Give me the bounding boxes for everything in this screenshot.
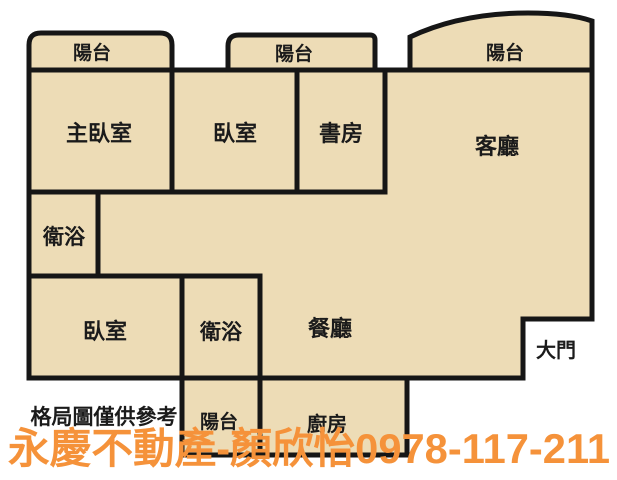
dining-room-label: 餐廳 bbox=[308, 316, 352, 341]
balcony-top-right-label: 陽台 bbox=[486, 41, 524, 64]
living-room-label: 客廳 bbox=[475, 134, 519, 159]
walls bbox=[29, 13, 592, 455]
floor-plan-image: 陽台 陽台 陽台 主臥室 臥室 書房 客廳 衛浴 臥室 衛浴 餐廳 大門 陽台 … bbox=[0, 0, 617, 480]
floor-plan-svg: 陽台 陽台 陽台 主臥室 臥室 書房 客廳 衛浴 臥室 衛浴 餐廳 大門 陽台 … bbox=[0, 0, 617, 480]
bedroom-3-label: 臥室 bbox=[83, 319, 127, 344]
main-door-label: 大門 bbox=[536, 339, 576, 362]
balcony-top-left-label: 陽台 bbox=[73, 41, 111, 64]
bathroom-upper-label: 衛浴 bbox=[42, 225, 86, 249]
watermark-text: 永慶不動產-顏欣怡0978-117-211 bbox=[8, 425, 610, 472]
balcony-top-middle-label: 陽台 bbox=[275, 42, 313, 65]
study-label: 書房 bbox=[319, 121, 363, 146]
master-bedroom-label: 主臥室 bbox=[66, 121, 132, 146]
bathroom-lower-label: 衛浴 bbox=[199, 320, 243, 344]
bedroom-2-label: 臥室 bbox=[213, 121, 257, 146]
room-shapes bbox=[29, 13, 592, 455]
